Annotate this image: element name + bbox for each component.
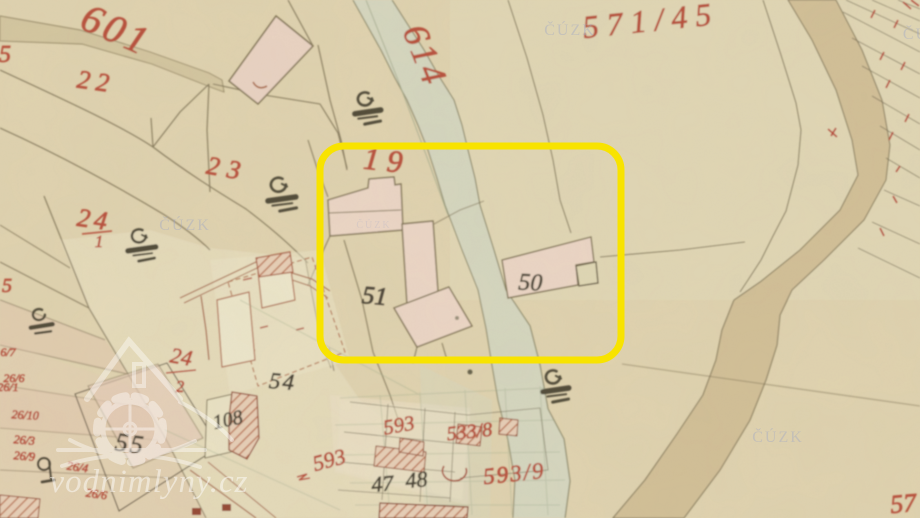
svg-text:ČÚZK: ČÚZK <box>752 427 804 446</box>
svg-text:ČÚZK: ČÚZK <box>544 20 596 39</box>
svg-text:ČÚZK: ČÚZK <box>356 219 391 231</box>
svg-text:vodnimlyny.cz: vodnimlyny.cz <box>49 464 248 500</box>
svg-text:ČÚ: ČÚ <box>903 24 920 43</box>
svg-text:ČÚZK: ČÚZK <box>159 215 211 234</box>
